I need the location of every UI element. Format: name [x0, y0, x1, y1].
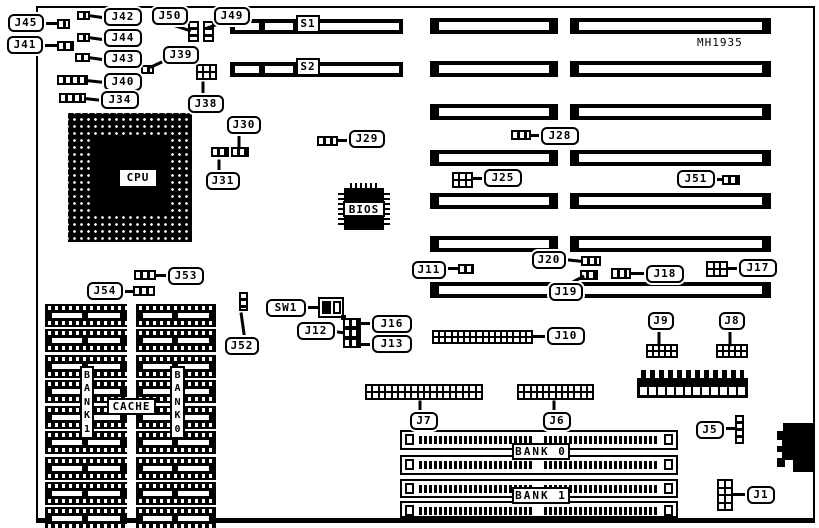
- callout-j25: J25: [484, 169, 522, 187]
- slot-s2-label: S2: [296, 58, 320, 76]
- jumper-j51: [722, 175, 740, 185]
- callout-j42: J42: [104, 8, 142, 26]
- callout-j8: J8: [719, 312, 745, 330]
- slot-s1-label: S1: [296, 15, 320, 33]
- power-connector: [637, 370, 748, 398]
- isa-slot-segment: [570, 236, 771, 252]
- cache-chip: [136, 329, 216, 352]
- callout-j49: J49: [214, 7, 250, 25]
- header-j10: [432, 330, 533, 344]
- callout-sw1: SW1: [266, 299, 306, 317]
- simm-bank0-label: BANK 0: [512, 443, 570, 460]
- callout-j31: J31: [206, 172, 240, 190]
- isa-slot-segment: [430, 193, 558, 209]
- callout-j51: J51: [677, 170, 715, 188]
- keyboard-connector: [777, 431, 785, 467]
- isa-slot-segment: [430, 61, 558, 77]
- callout-j7: J7: [410, 412, 438, 430]
- callout-j29: J29: [349, 130, 385, 148]
- keyboard-connector: [783, 423, 815, 460]
- pointer-j45: [43, 22, 58, 25]
- pointer-j10: [533, 335, 548, 338]
- isa-slot-segment: [570, 193, 771, 209]
- callout-j28: J28: [541, 127, 579, 145]
- callout-j10: J10: [547, 327, 585, 345]
- callout-j45: J45: [8, 14, 44, 32]
- callout-j34: J34: [101, 91, 139, 109]
- simm-latch: [664, 459, 673, 470]
- jumper-j40: [57, 75, 88, 85]
- cache-bank0-label: B A N K 0: [170, 366, 185, 439]
- cache-chip: [45, 482, 127, 505]
- callout-j13: J13: [372, 335, 412, 353]
- callout-j11: J11: [412, 261, 446, 279]
- jumper-j28: [511, 130, 531, 140]
- jumper-j29: [317, 136, 338, 146]
- simm-latch: [405, 505, 414, 516]
- jumper-j20: [581, 256, 601, 266]
- callout-j5: J5: [696, 421, 724, 439]
- cpu-socket: CPU: [68, 113, 192, 242]
- callout-j18: J18: [646, 265, 684, 283]
- motherboard-diagram: { "board": { "part_number": "MH1935" }, …: [0, 0, 819, 528]
- callout-j6: J6: [543, 412, 571, 430]
- callout-j43: J43: [104, 50, 142, 68]
- isa-slot-segment: [570, 18, 771, 34]
- jumper-j53: [134, 270, 156, 280]
- isa-slot-segment: [570, 104, 771, 120]
- pointer-j17: [726, 267, 740, 270]
- power-connector-sockets: [639, 386, 746, 396]
- pointer-j53: [155, 274, 169, 277]
- power-connector-pins: [641, 370, 744, 378]
- isa-slot-segment: [570, 282, 771, 298]
- dip-switch-sw1: [318, 297, 344, 318]
- cache-chip: [45, 457, 127, 480]
- callout-j12: J12: [297, 322, 335, 340]
- part-number: MH1935: [697, 36, 743, 49]
- pointer-j18: [630, 272, 647, 275]
- jumper-j31: [211, 147, 229, 157]
- cpu-label: CPU: [120, 170, 156, 186]
- callout-j50: J50: [152, 7, 188, 25]
- pointer-j8: [729, 331, 732, 347]
- cache-chip: [136, 507, 216, 528]
- pointer-j25: [471, 177, 485, 180]
- simm-latch: [405, 459, 414, 470]
- pointer-j41: [42, 44, 58, 47]
- simm-latch: [664, 434, 673, 445]
- isa-slot-segment: [430, 282, 558, 298]
- callout-j40: J40: [104, 73, 142, 91]
- header-j25: [452, 172, 473, 188]
- callout-j52: J52: [225, 337, 259, 355]
- jumper-j18: [611, 268, 631, 279]
- header-j17: [706, 261, 728, 277]
- callout-j1: J1: [747, 486, 775, 504]
- cache-bank1-label: B A N K 1: [80, 366, 94, 439]
- jumper-j45: [57, 19, 70, 29]
- pointer-sw1: [305, 306, 319, 309]
- header-j7: [365, 384, 483, 400]
- callout-j17: J17: [739, 259, 777, 277]
- pointer-j1: [731, 493, 748, 496]
- bios-label: BIOS: [343, 201, 385, 217]
- cache-chip: [45, 329, 127, 352]
- jumper-j12: [343, 328, 361, 338]
- callout-j54: J54: [87, 282, 123, 300]
- keyboard-connector-notch: [777, 452, 782, 458]
- pointer-j30: [238, 135, 241, 150]
- cache-chip: [136, 482, 216, 505]
- header-j8: [716, 344, 748, 358]
- isa-slot-segment: [570, 150, 771, 166]
- isa-slot-segment: [430, 236, 558, 252]
- jumper-j13: [343, 338, 361, 348]
- cache-chip: [136, 457, 216, 480]
- jumper-j11: [458, 264, 474, 274]
- callout-j20: J20: [532, 251, 566, 269]
- jumper-j52: [239, 292, 248, 311]
- isa-slot-segment: [430, 150, 558, 166]
- simm-latch: [664, 483, 673, 494]
- callout-j39: J39: [163, 46, 199, 64]
- isa-slot-segment: [430, 18, 558, 34]
- pointer-j9: [658, 331, 661, 347]
- callout-j19: J19: [549, 283, 583, 301]
- header-j5: [735, 415, 744, 444]
- jumper-j34: [59, 93, 86, 103]
- header-j9: [646, 344, 678, 358]
- jumper-j41: [57, 41, 74, 51]
- isa-slot-segment: [570, 61, 771, 77]
- pointer-j5: [722, 427, 736, 430]
- simm-latch: [664, 505, 673, 516]
- keyboard-connector-notch: [777, 440, 782, 446]
- callout-j38: J38: [188, 95, 224, 113]
- callout-j16: J16: [372, 315, 412, 333]
- callout-j41: J41: [7, 36, 43, 54]
- callout-j53: J53: [168, 267, 204, 285]
- simm-latch: [405, 434, 414, 445]
- cache-label: CACHE: [107, 398, 156, 415]
- callout-j44: J44: [104, 29, 142, 47]
- cache-chip: [45, 507, 127, 528]
- simm-bank1-label: BANK 1: [512, 487, 570, 504]
- header-j38: [196, 64, 217, 80]
- pointer-j54: [122, 290, 134, 293]
- cache-chip: [136, 304, 216, 327]
- callout-j30: J30: [227, 116, 261, 134]
- jumper-j54: [133, 286, 155, 296]
- header-j6: [517, 384, 594, 400]
- simm-latch: [405, 483, 414, 494]
- callout-j9: J9: [648, 312, 674, 330]
- keyboard-connector: [793, 458, 815, 472]
- pointer-j11: [444, 267, 459, 270]
- cache-chip: [45, 304, 127, 327]
- isa-slot-segment: [430, 104, 558, 120]
